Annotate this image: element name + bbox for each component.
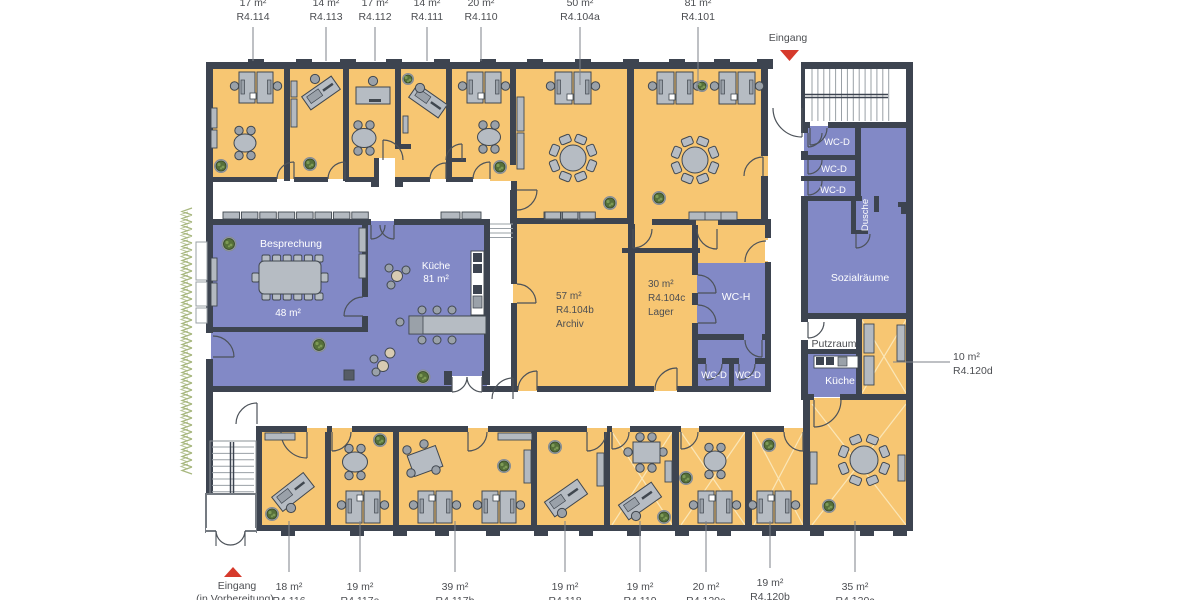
svg-text:19 m²: 19 m² [552, 581, 579, 593]
svg-text:81 m²: 81 m² [423, 274, 449, 285]
svg-text:(in Vorbereitung): (in Vorbereitung) [196, 593, 274, 600]
svg-text:WC-D: WC-D [821, 164, 847, 175]
svg-text:17 m²: 17 m² [362, 0, 389, 9]
svg-text:Besprechung: Besprechung [260, 238, 322, 250]
svg-text:R4.120a: R4.120a [686, 595, 726, 600]
svg-text:R4.101: R4.101 [681, 11, 715, 23]
svg-text:20 m²: 20 m² [693, 581, 720, 593]
svg-text:R4.119: R4.119 [623, 595, 656, 600]
svg-text:81 m²: 81 m² [685, 0, 712, 9]
svg-text:R4.104a: R4.104a [560, 11, 600, 23]
svg-text:Eingang: Eingang [218, 580, 257, 592]
svg-text:50 m²: 50 m² [567, 0, 594, 9]
svg-text:35 m²: 35 m² [842, 581, 869, 593]
svg-text:Lager: Lager [648, 307, 674, 318]
svg-text:Küche: Küche [422, 261, 451, 272]
svg-text:18 m²: 18 m² [276, 581, 303, 593]
svg-text:R4.120c: R4.120c [835, 595, 874, 600]
svg-text:R4.113: R4.113 [309, 11, 342, 23]
svg-text:57 m²: 57 m² [556, 291, 582, 302]
svg-text:R4.111: R4.111 [411, 11, 443, 23]
svg-text:30 m²: 30 m² [648, 279, 674, 290]
svg-text:WC-D: WC-D [735, 370, 761, 381]
svg-text:Dusche: Dusche [860, 199, 871, 231]
svg-text:Küche: Küche [825, 375, 855, 387]
svg-text:R4.117b: R4.117b [436, 595, 475, 600]
svg-text:17 m²: 17 m² [240, 0, 267, 9]
svg-text:R4.120d: R4.120d [953, 365, 993, 377]
svg-text:R4.117a: R4.117a [341, 595, 380, 600]
svg-text:R4.112: R4.112 [358, 11, 391, 23]
svg-text:Sozialräume: Sozialräume [831, 272, 890, 284]
svg-text:Archiv: Archiv [556, 319, 584, 330]
svg-text:19 m²: 19 m² [627, 581, 654, 593]
svg-text:19 m²: 19 m² [347, 581, 374, 593]
svg-text:R4.110: R4.110 [464, 11, 497, 23]
svg-text:R4.104b: R4.104b [556, 305, 594, 316]
svg-text:R4.116: R4.116 [272, 595, 305, 600]
svg-text:R4.120b: R4.120b [750, 591, 790, 600]
svg-text:R4.114: R4.114 [236, 11, 269, 23]
svg-text:19 m²: 19 m² [757, 577, 784, 589]
svg-text:48 m²: 48 m² [275, 308, 301, 319]
svg-text:Eingang: Eingang [769, 32, 808, 44]
svg-text:14 m²: 14 m² [414, 0, 441, 9]
svg-text:WC-H: WC-H [722, 291, 751, 303]
svg-text:R4.104c: R4.104c [648, 293, 685, 304]
svg-text:WC-D: WC-D [701, 370, 727, 381]
svg-text:WC-D: WC-D [820, 185, 846, 196]
svg-text:Putzraum: Putzraum [812, 338, 857, 350]
svg-text:WC-D: WC-D [824, 137, 850, 148]
svg-text:20 m²: 20 m² [468, 0, 495, 9]
svg-text:14 m²: 14 m² [313, 0, 340, 9]
svg-text:10 m²: 10 m² [953, 351, 980, 363]
svg-text:39 m²: 39 m² [442, 581, 469, 593]
svg-text:R4.118: R4.118 [548, 595, 581, 600]
